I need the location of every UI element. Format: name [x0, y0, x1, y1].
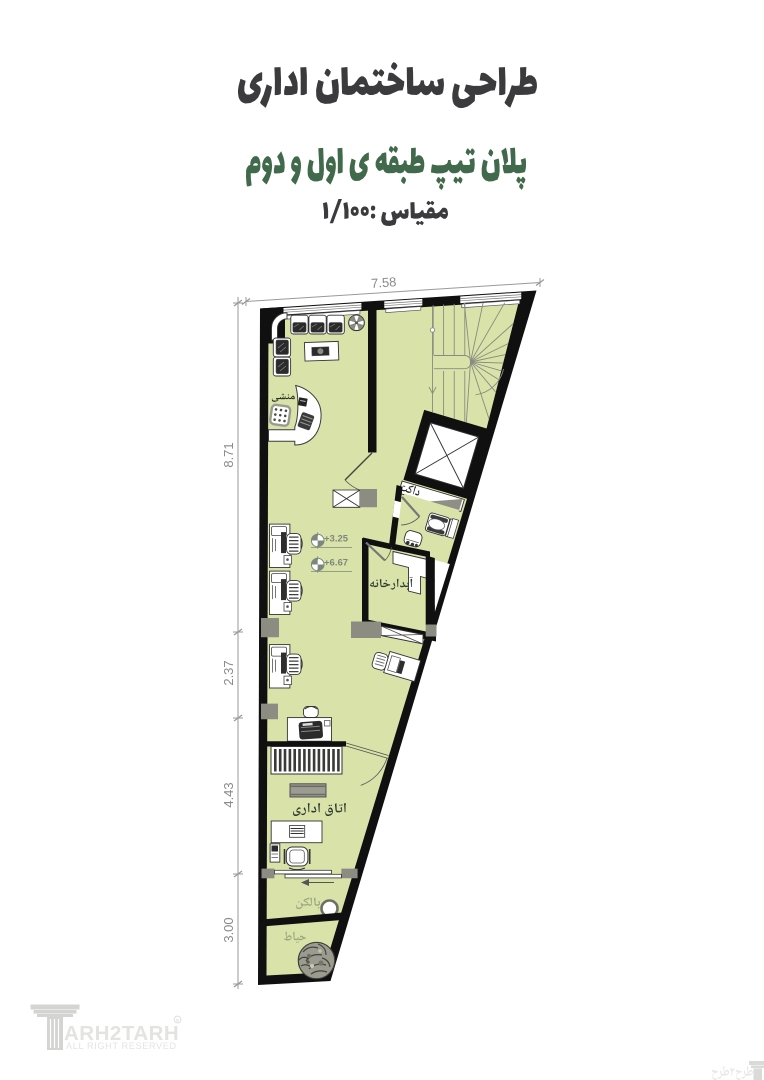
svg-text:2.37: 2.37: [221, 660, 236, 685]
svg-text:+3.25: +3.25: [324, 534, 349, 545]
svg-text:7.58: 7.58: [371, 274, 397, 291]
svg-text:3.00: 3.00: [221, 917, 236, 942]
svg-text:ALL RIGHT RESERVED: ALL RIGHT RESERVED: [66, 1041, 177, 1051]
svg-text:8.71: 8.71: [221, 442, 236, 467]
svg-text:+6.67: +6.67: [324, 558, 348, 569]
svg-text:R: R: [176, 1018, 180, 1024]
svg-text:4.43: 4.43: [221, 782, 236, 807]
